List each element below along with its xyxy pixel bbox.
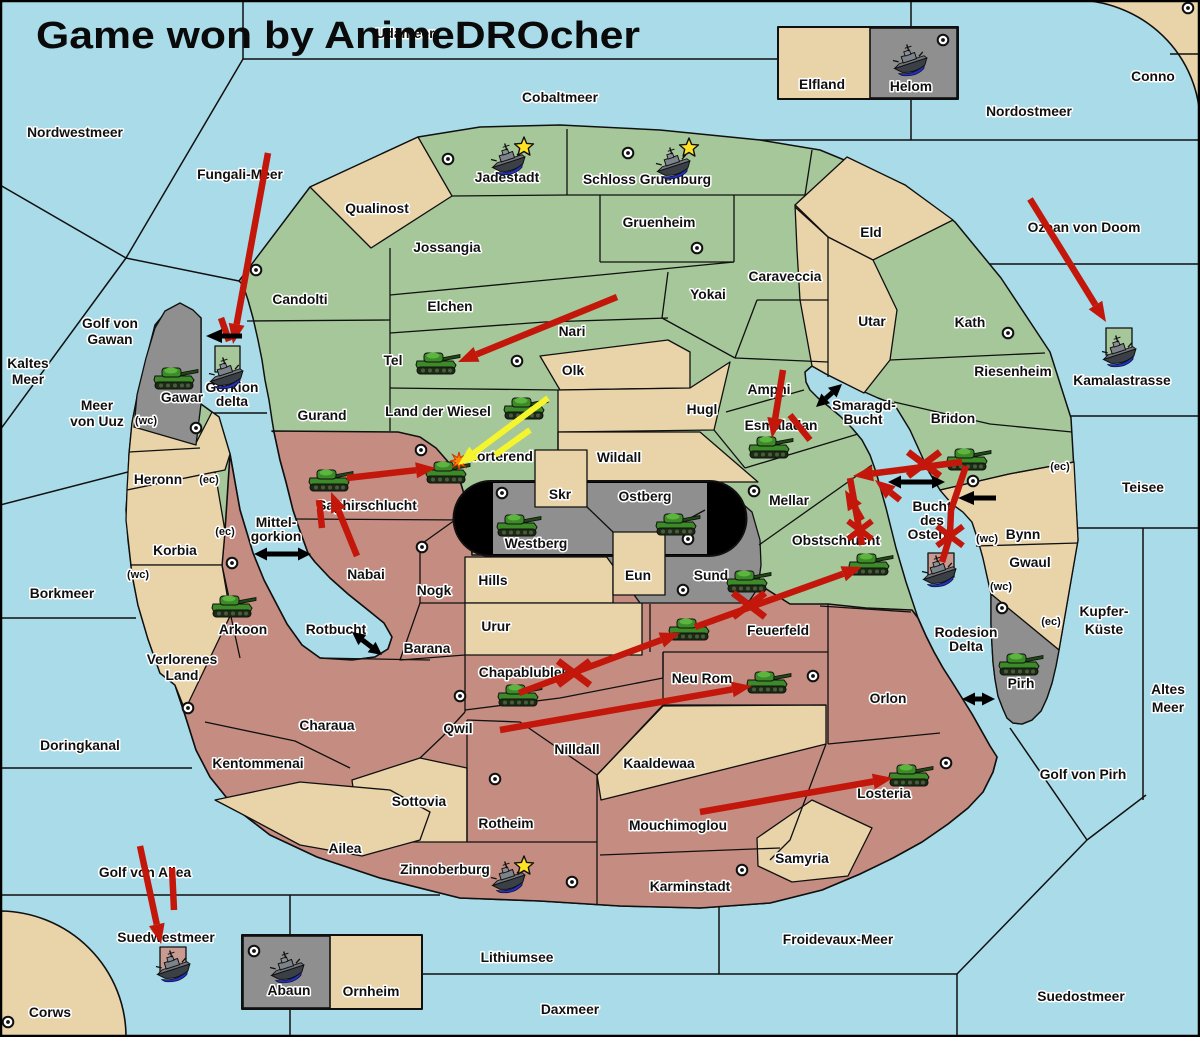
svg-text:(ec): (ec) [1041,616,1061,628]
svg-text:Gawan: Gawan [87,332,132,347]
svg-text:Karminstadt: Karminstadt [650,879,731,894]
svg-text:gorkion: gorkion [251,529,302,544]
svg-text:Urur: Urur [481,619,511,634]
svg-text:Rotheim: Rotheim [478,816,533,831]
svg-text:Suedostmeer: Suedostmeer [1037,989,1125,1004]
svg-text:Tel: Tel [384,353,403,368]
svg-text:Suedwestmeer: Suedwestmeer [117,930,215,945]
svg-text:Kaltes: Kaltes [7,356,49,371]
svg-text:Schloss Gruenburg: Schloss Gruenburg [583,172,711,187]
svg-text:Ornheim: Ornheim [343,984,400,999]
svg-text:Wildall: Wildall [597,450,641,465]
svg-text:Elfland: Elfland [799,77,845,92]
svg-text:Hugl: Hugl [687,402,718,417]
svg-text:Neu Rom: Neu Rom [672,671,733,686]
svg-text:Bucht: Bucht [912,499,951,514]
svg-text:Kaaldewaa: Kaaldewaa [623,756,695,771]
svg-text:Arkoon: Arkoon [219,622,267,637]
svg-text:Zinnoberburg: Zinnoberburg [400,862,490,877]
svg-text:Abaun: Abaun [268,983,311,998]
svg-text:Orlon: Orlon [870,691,907,706]
svg-text:Qualinost: Qualinost [345,201,409,216]
svg-text:Rodesion: Rodesion [935,625,998,640]
svg-text:Sottovia: Sottovia [392,794,447,809]
svg-text:Olk: Olk [562,363,585,378]
svg-text:Losteria: Losteria [857,786,911,801]
svg-text:(ec): (ec) [215,526,235,538]
svg-text:Fungali-Meer: Fungali-Meer [197,167,283,182]
svg-text:von Uuz: von Uuz [70,414,124,429]
svg-text:Gruenheim: Gruenheim [623,215,696,230]
svg-text:Feuerfeld: Feuerfeld [747,623,809,638]
svg-text:Doringkanal: Doringkanal [40,738,120,753]
svg-text:Land: Land [166,668,199,683]
svg-text:Gawar: Gawar [161,390,204,405]
svg-text:Conno: Conno [1131,69,1175,84]
svg-text:Borkmeer: Borkmeer [30,586,95,601]
svg-text:Delta: Delta [949,639,983,654]
svg-text:Daxmeer: Daxmeer [541,1002,600,1017]
svg-text:Golf von Pirh: Golf von Pirh [1040,767,1127,782]
svg-text:Sund: Sund [694,568,729,583]
svg-text:Qwil: Qwil [443,721,472,736]
svg-text:Nordostmeer: Nordostmeer [986,104,1072,119]
svg-text:Heronn: Heronn [134,472,182,487]
svg-text:Korbia: Korbia [153,543,197,558]
svg-text:Nilldall: Nilldall [554,742,599,757]
svg-text:Barana: Barana [404,641,451,656]
svg-text:Eun: Eun [625,568,651,583]
svg-text:Teisee: Teisee [1122,480,1164,495]
svg-text:Gwaul: Gwaul [1009,555,1050,570]
svg-text:Küste: Küste [1085,622,1124,637]
svg-text:Corws: Corws [29,1005,71,1020]
svg-text:Gurand: Gurand [297,408,346,423]
svg-text:Smaragd-: Smaragd- [832,398,896,413]
svg-text:Pirh: Pirh [1008,676,1035,691]
svg-text:Golf von: Golf von [82,316,138,331]
svg-text:Kentommenai: Kentommenai [212,756,303,771]
svg-text:(wc): (wc) [976,533,998,545]
svg-text:Cobaltmeer: Cobaltmeer [522,90,599,105]
svg-text:Kamalastrasse: Kamalastrasse [1073,373,1171,388]
svg-text:Helom: Helom [890,79,932,94]
svg-text:Kath: Kath [955,315,986,330]
svg-text:Candolti: Candolti [272,292,327,307]
svg-text:Hills: Hills [478,573,507,588]
svg-text:Lithiumsee: Lithiumsee [481,950,554,965]
svg-text:Altes: Altes [1151,682,1185,697]
svg-text:Meer: Meer [12,372,45,387]
svg-text:Amphi: Amphi [748,382,791,397]
svg-text:Mellar: Mellar [769,493,810,508]
svg-text:Nari: Nari [559,324,586,339]
svg-text:(ec): (ec) [199,474,219,486]
svg-text:Meer: Meer [1152,700,1185,715]
svg-text:Westberg: Westberg [505,536,568,551]
svg-text:(wc): (wc) [127,569,149,581]
svg-text:Ostberg: Ostberg [619,489,672,504]
svg-text:(wc): (wc) [990,581,1012,593]
svg-text:Meer: Meer [81,398,114,413]
svg-text:Mouchimoglou: Mouchimoglou [629,818,727,833]
svg-text:Nogk: Nogk [417,583,452,598]
svg-text:Verlorenes: Verlorenes [147,652,218,667]
svg-text:Land der Wiesel: Land der Wiesel [385,404,491,419]
svg-text:delta: delta [216,394,249,409]
svg-text:Yokai: Yokai [690,287,726,302]
svg-text:Bucht: Bucht [843,412,882,427]
svg-text:Bynn: Bynn [1006,527,1041,542]
svg-text:Nabai: Nabai [347,567,385,582]
svg-text:Bridon: Bridon [931,411,975,426]
svg-text:Ailea: Ailea [329,841,362,856]
svg-text:Caraveccia: Caraveccia [749,269,822,284]
svg-text:Skr: Skr [549,487,572,502]
svg-text:Elchen: Elchen [427,299,472,314]
svg-text:(wc): (wc) [135,415,157,427]
svg-text:Utar: Utar [858,314,886,329]
svg-text:Mittel-: Mittel- [256,515,297,530]
svg-text:Samyria: Samyria [775,851,829,866]
svg-text:Nordwestmeer: Nordwestmeer [27,125,123,140]
svg-text:Riesenheim: Riesenheim [974,364,1051,379]
svg-text:Kupfer-: Kupfer- [1079,604,1128,619]
svg-text:Eld: Eld [860,225,881,240]
svg-text:Froidevaux-Meer: Froidevaux-Meer [783,932,894,947]
svg-text:(ec): (ec) [1050,461,1070,473]
svg-text:Game won by AnimeDROcher: Game won by AnimeDROcher [36,15,640,57]
svg-text:Jossangia: Jossangia [413,240,481,255]
svg-text:Charaua: Charaua [299,718,355,733]
